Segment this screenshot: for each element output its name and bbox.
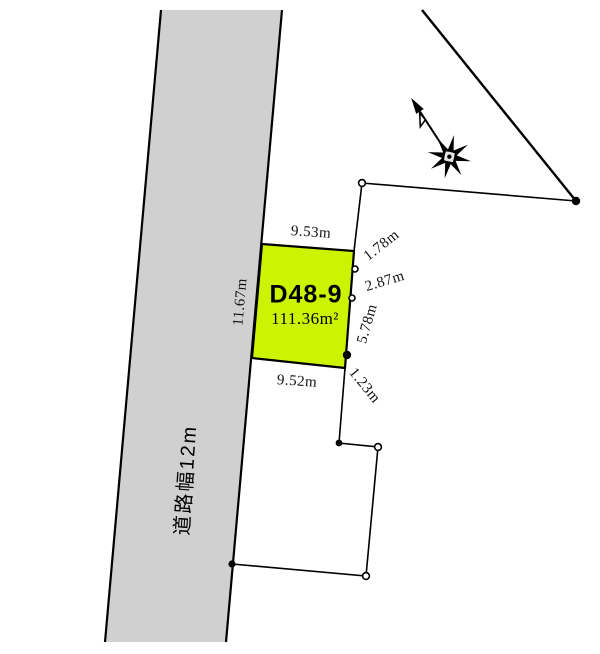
vertex-dot bbox=[359, 180, 366, 187]
vertex-dot bbox=[352, 266, 358, 272]
vertex-dot bbox=[228, 560, 235, 567]
vertex-dot bbox=[349, 295, 355, 301]
vertex-dot bbox=[572, 197, 580, 205]
vertex-dot bbox=[375, 444, 382, 451]
vertex-dot bbox=[343, 351, 351, 359]
boundary-lower-polyline bbox=[232, 368, 378, 576]
vertex-dot bbox=[336, 440, 343, 447]
vertex-dot bbox=[363, 573, 370, 580]
dimension-bottom-label: 9.52m bbox=[276, 372, 318, 392]
parcel-id-label: D48-9 bbox=[269, 281, 342, 310]
boundary-upper-right-line bbox=[354, 183, 362, 251]
dimension-top-label: 9.53m bbox=[290, 223, 332, 243]
compass-north-icon bbox=[393, 86, 480, 187]
site-plan: 9.53m 11.67m 9.52m 1.78m 2.87m 5.78m 1.2… bbox=[0, 0, 600, 654]
parcel-area-label: 111.36m² bbox=[271, 309, 339, 329]
boundary-top-line bbox=[362, 183, 576, 201]
